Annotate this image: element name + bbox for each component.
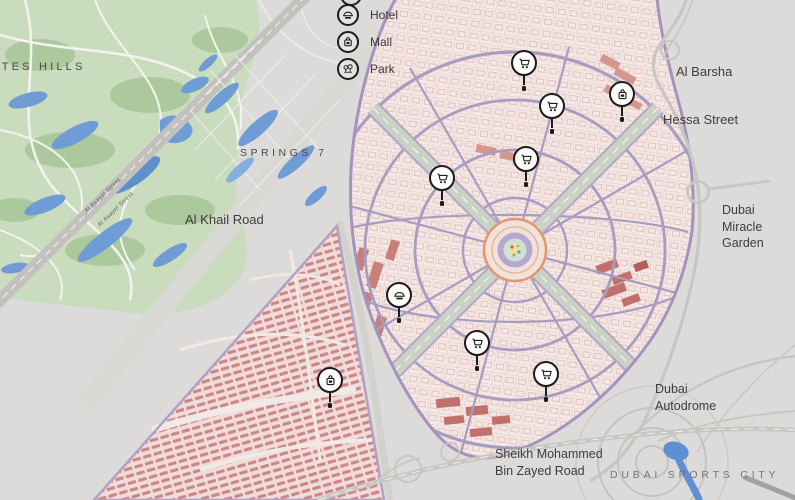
cart-icon — [511, 50, 537, 76]
legend-item-park: Park — [337, 58, 398, 80]
pin-stem — [329, 393, 331, 402]
pin-dot — [620, 117, 625, 122]
pin-dot — [397, 318, 402, 323]
mall-icon — [609, 81, 635, 107]
cart-icon — [513, 146, 539, 172]
pin-stem — [545, 387, 547, 396]
supermarket-pin[interactable] — [511, 50, 537, 91]
mall-pin[interactable] — [609, 81, 635, 122]
supermarket-pin[interactable] — [464, 330, 490, 371]
pin-stem — [621, 107, 623, 116]
pin-dot — [524, 182, 529, 187]
cart-icon — [429, 165, 455, 191]
pin-dot — [522, 86, 527, 91]
pin-stem — [525, 172, 527, 181]
pin-dot — [544, 397, 549, 402]
legend: HotelMallPark — [337, 4, 398, 80]
cart-icon — [539, 93, 565, 119]
legend-item-mall: Mall — [337, 31, 398, 53]
hotel-icon — [386, 282, 412, 308]
pin-dot — [475, 366, 480, 371]
mall-icon — [337, 31, 359, 53]
mall-icon — [317, 367, 343, 393]
supermarket-pin[interactable] — [513, 146, 539, 187]
pin-stem — [523, 76, 525, 85]
pin-stem — [476, 356, 478, 365]
park-icon — [337, 58, 359, 80]
pin-dot — [550, 129, 555, 134]
pin-stem — [398, 308, 400, 317]
legend-label-mall: Mall — [370, 35, 392, 49]
mall-pin[interactable] — [317, 367, 343, 408]
pin-stem — [551, 119, 553, 128]
pin-dot — [440, 201, 445, 206]
pin-dot — [328, 403, 333, 408]
cart-icon — [533, 361, 559, 387]
map-page: { "canvas": {"width": 795, "height": 500… — [0, 0, 795, 500]
supermarket-pin[interactable] — [429, 165, 455, 206]
supermarket-pin[interactable] — [533, 361, 559, 402]
cart-icon — [464, 330, 490, 356]
legend-label-hotel: Hotel — [370, 8, 398, 22]
pin-stem — [441, 191, 443, 200]
supermarket-pin[interactable] — [539, 93, 565, 134]
central-roundabout — [484, 219, 546, 281]
legend-label-park: Park — [370, 62, 395, 76]
legend-item-hotel: Hotel — [337, 4, 398, 26]
hotel-icon — [337, 4, 359, 26]
hotel-pin[interactable] — [386, 282, 412, 323]
